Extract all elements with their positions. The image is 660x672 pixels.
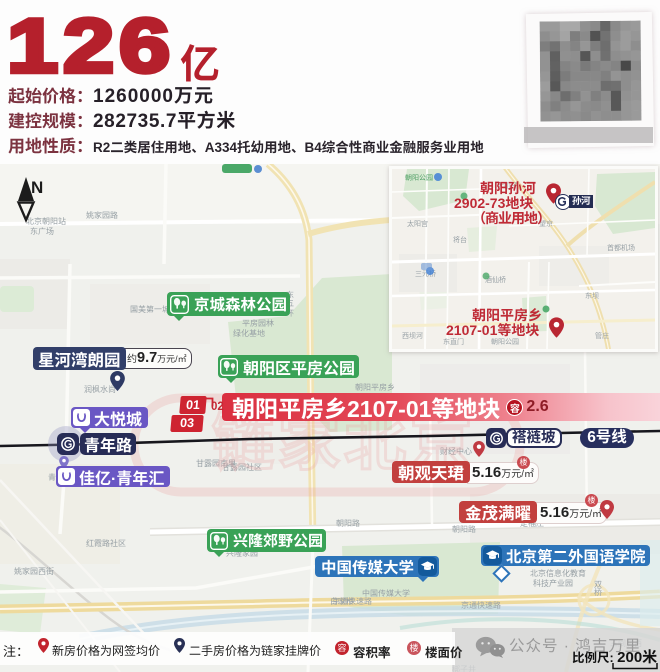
svg-text:京通快速路: 京通快速路: [461, 601, 501, 610]
svg-text:双桥: 双桥: [594, 580, 603, 597]
svg-text:管庄: 管庄: [595, 331, 609, 340]
svg-text:绿化基地: 绿化基地: [233, 328, 265, 338]
svg-text:京通快速路: 京通快速路: [332, 597, 372, 606]
svg-text:姚家园路: 姚家园路: [86, 211, 118, 220]
svg-text:东广场: 东广场: [30, 227, 54, 236]
svg-text:N: N: [31, 178, 43, 197]
svg-text:姚家园西街: 姚家园西街: [14, 566, 54, 576]
svg-text:将台: 将台: [453, 235, 467, 244]
svg-text:红霞路社区: 红霞路社区: [86, 538, 126, 548]
svg-text:国美第一城: 国美第一城: [130, 304, 170, 314]
svg-text:朝阳路: 朝阳路: [336, 519, 360, 528]
svg-text:北京信息化教育: 北京信息化教育: [530, 568, 586, 578]
svg-text:朝阳路: 朝阳路: [452, 525, 476, 534]
svg-text:平房园林: 平房园林: [242, 319, 274, 328]
svg-text:西坝河: 西坝河: [402, 331, 423, 340]
svg-text:科技产业园: 科技产业园: [533, 578, 573, 588]
svg-text:北京朝阳站: 北京朝阳站: [26, 216, 66, 226]
svg-text:首都机场: 首都机场: [607, 243, 635, 252]
svg-text:朝阳公园: 朝阳公园: [405, 174, 433, 182]
svg-text:太阳宫: 太阳宫: [407, 219, 428, 228]
svg-text:东坝: 东坝: [585, 291, 599, 300]
